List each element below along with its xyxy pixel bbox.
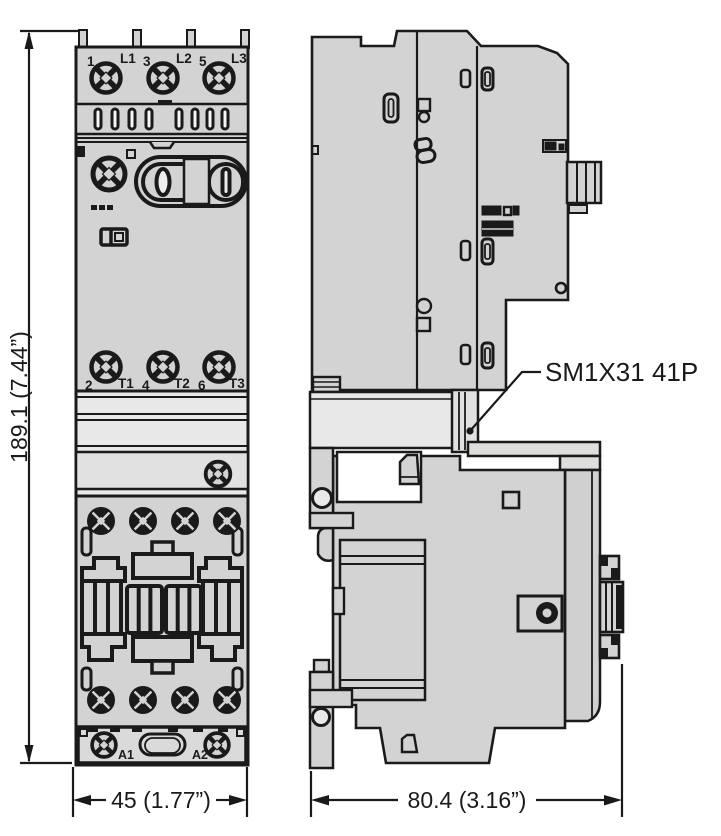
breaker-side-connector [567, 162, 601, 213]
contact-assembly [82, 542, 242, 673]
coil-screw-a2 [205, 733, 229, 757]
coil-terminal-strip: A1 A2 [78, 727, 246, 763]
height-dimension: 189.1 (7.44”) [6, 31, 79, 763]
aux-screw [172, 508, 198, 534]
pole-window [166, 586, 201, 633]
mount-hole [313, 709, 330, 726]
bottom-tab [402, 735, 417, 752]
contactor-rear-panel [565, 470, 600, 721]
vent-slot [146, 109, 152, 129]
reset-window [101, 229, 127, 245]
vent-tick [158, 100, 172, 105]
vent-slot [207, 109, 213, 129]
contactor-side-body [310, 442, 623, 768]
strip-corner [237, 729, 244, 736]
aux-screw [214, 687, 240, 713]
link-module-screw [206, 462, 231, 487]
coil-terminal-label: A1 [118, 748, 134, 762]
line-terminal-screw-3 [149, 64, 178, 93]
rocker-on-slot [223, 169, 230, 195]
terminal-label: L2 [176, 51, 192, 66]
terminal-label: L1 [120, 51, 136, 66]
aux-screw [88, 508, 114, 534]
top-pins [79, 30, 249, 48]
strip-corner [80, 729, 87, 736]
side-marker [76, 146, 85, 157]
rocker-bridge [184, 159, 209, 204]
side-view: SM1X31 41P [310, 31, 698, 768]
contactor-top-lip [468, 442, 600, 456]
side-depth-dimension-text: 80.4 (3.16”) [408, 787, 527, 813]
load-terminal-screw-4 [149, 353, 178, 382]
aux-screw [130, 508, 156, 534]
link-module-front [76, 391, 248, 496]
terminal-label: T1 [118, 376, 134, 391]
mount-hook [318, 528, 333, 561]
dimension-drawing-canvas: 1 L1 3 L2 5 L3 [0, 0, 721, 836]
aux-screw [214, 508, 240, 534]
rocker-off-slot [157, 169, 170, 195]
side-latch-detail [518, 596, 562, 631]
pin [187, 30, 195, 48]
load-terminal-screw-2 [92, 353, 121, 382]
vent-slot [192, 109, 198, 129]
pole-window [127, 586, 162, 633]
corner-slot [82, 528, 91, 555]
indicator-window [127, 150, 135, 158]
arrowhead-down [25, 745, 34, 763]
setting-marks [91, 205, 113, 210]
link-module-side [310, 390, 478, 452]
product-label: SM1X31 41P [545, 357, 698, 387]
aux-screw [130, 687, 156, 713]
front-view: 1 L1 3 L2 5 L3 [76, 30, 249, 765]
pole-window [82, 581, 121, 634]
drawing-svg: 1 L1 3 L2 5 L3 [0, 0, 721, 836]
breaker-outline [312, 31, 568, 390]
coil-window-side [333, 540, 425, 700]
front-width-dimension: 45 (1.77”) [73, 767, 247, 817]
coil-terminal-label: A2 [192, 748, 208, 762]
pin [133, 30, 141, 48]
arrowhead-left [311, 795, 329, 806]
terminal-label: 5 [199, 54, 207, 69]
terminal-label: L3 [231, 51, 247, 66]
line-terminal-screw-1 [92, 64, 121, 93]
vent-slot [176, 109, 182, 129]
load-terminal-screw-6 [205, 353, 234, 382]
vent-slot [129, 109, 135, 129]
contactor-front: A1 A2 [76, 496, 248, 765]
aux-screw [88, 687, 114, 713]
terminal-label: T2 [174, 376, 190, 391]
corner-slot [233, 668, 242, 690]
pin [241, 30, 249, 48]
corner-slot [82, 668, 91, 690]
terminal-label: T3 [229, 376, 245, 391]
rocker-switch [136, 157, 246, 206]
pole-window [203, 581, 242, 634]
side-window [503, 492, 519, 508]
height-dimension-text: 189.1 (7.44”) [6, 331, 32, 463]
vent-slot [222, 109, 228, 129]
breaker-side-body [312, 31, 601, 406]
vent-slot [95, 109, 101, 129]
terminal-label: 3 [143, 54, 151, 69]
arrowhead-right [604, 795, 622, 806]
breaker-front-body [76, 47, 248, 391]
vent-slot [112, 109, 118, 129]
pin [79, 30, 87, 48]
vent-strip [76, 100, 248, 134]
front-width-dimension-text: 45 (1.77”) [111, 787, 211, 813]
arrowhead-up [25, 31, 34, 49]
arrowhead-right [229, 795, 247, 806]
aux-screw [172, 687, 198, 713]
latch-tab [400, 455, 419, 484]
rear-connector-rail [600, 556, 623, 658]
mount-hole [313, 489, 332, 508]
adjustment-dial [93, 158, 125, 190]
arrowhead-left [73, 795, 91, 806]
coil-screw-a1 [92, 733, 116, 757]
line-terminal-screw-5 [205, 64, 234, 93]
